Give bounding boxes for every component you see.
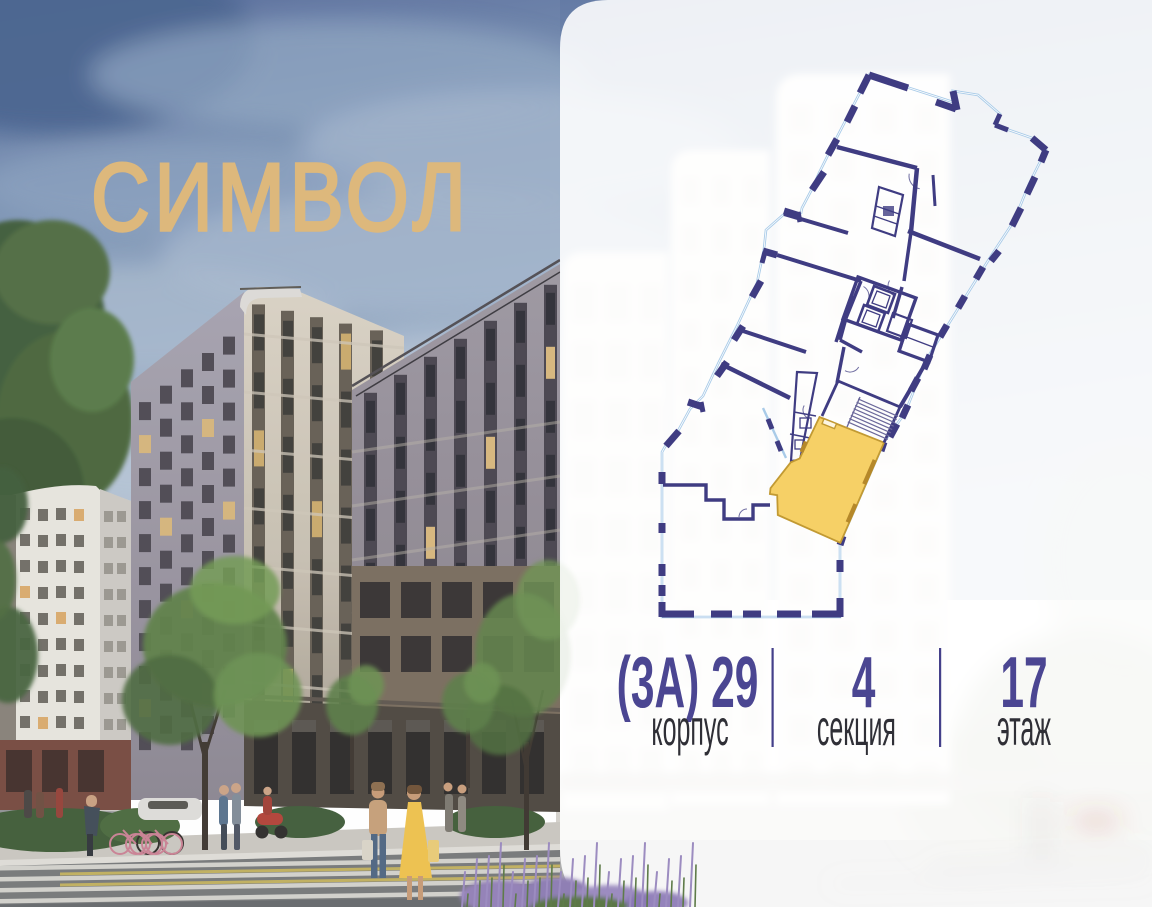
svg-text:секция: секция (817, 701, 896, 757)
svg-text:корпус: корпус (651, 701, 728, 757)
svg-text:СИМВОЛ: СИМВОЛ (91, 143, 470, 250)
svg-text:этаж: этаж (997, 701, 1051, 757)
